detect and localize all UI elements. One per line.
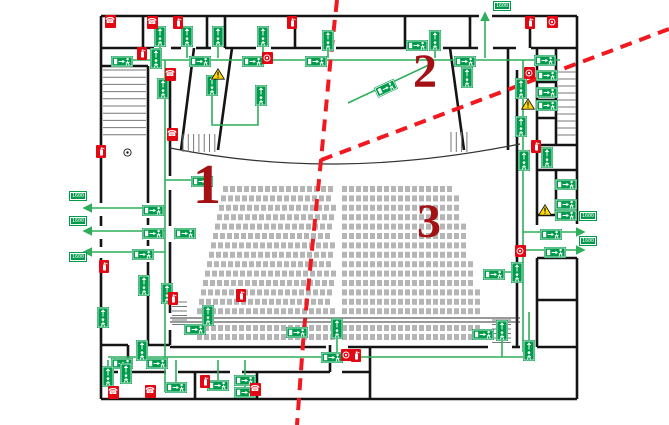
exit-sign — [257, 26, 269, 47]
fire-phone-icon: ☎ — [108, 386, 119, 399]
exit-sign — [111, 54, 133, 65]
width-label: 1600 — [494, 2, 510, 10]
width-label: 1600 — [70, 217, 86, 225]
exit-sign — [536, 68, 558, 79]
fire-phone-icon: ☎ — [167, 128, 178, 141]
warning-icon — [521, 98, 535, 110]
zone-number: 1 — [193, 160, 221, 210]
fire-extinguisher-icon — [168, 292, 178, 305]
width-label: 1600 — [580, 237, 596, 245]
exit-sign — [242, 54, 264, 65]
fire-phone-icon: ☎ — [145, 385, 156, 398]
exit-sign — [154, 26, 166, 47]
fire-extinguisher-icon — [525, 16, 535, 29]
exit-sign — [146, 356, 168, 367]
floor-plan: ☎☎☎☎☎☎☎ 160016001600160016001600123 — [0, 0, 669, 425]
call-point-icon — [123, 148, 132, 157]
width-label: 1600 — [580, 212, 596, 220]
exit-sign — [511, 262, 523, 283]
exit-sign — [142, 203, 164, 214]
fire-extinguisher-icon — [137, 47, 147, 60]
exit-sign — [515, 116, 527, 137]
exit-sign — [483, 267, 505, 278]
symbols-layer: ☎☎☎☎☎☎☎ 160016001600160016001600123 — [0, 0, 669, 425]
exit-sign — [212, 26, 224, 47]
exit-sign — [157, 78, 169, 99]
fire-extinguisher-icon — [173, 16, 183, 29]
width-label: 1600 — [70, 253, 86, 261]
fire-phone-icon: ☎ — [105, 15, 116, 28]
width-label: 1600 — [70, 192, 86, 200]
exit-sign — [322, 30, 334, 51]
exit-sign — [536, 85, 558, 96]
exit-sign — [305, 54, 327, 65]
exit-sign — [534, 53, 556, 64]
exit-sign — [544, 245, 566, 256]
exit-sign — [189, 54, 211, 65]
zone-number: 3 — [417, 200, 441, 243]
exit-sign — [97, 307, 109, 328]
exit-sign — [331, 318, 343, 339]
alarm-button-icon — [262, 52, 273, 64]
fire-extinguisher-icon — [200, 375, 210, 388]
warning-icon — [538, 204, 552, 216]
alarm-button-icon — [547, 16, 558, 28]
fire-phone-icon: ☎ — [165, 68, 176, 81]
exit-sign — [555, 208, 577, 219]
exit-sign — [515, 78, 527, 99]
exit-sign — [102, 366, 114, 387]
exit-sign — [523, 340, 535, 361]
exit-sign — [518, 150, 530, 171]
fire-extinguisher-icon — [236, 289, 246, 302]
exit-sign — [541, 147, 553, 168]
exit-sign — [555, 197, 577, 208]
fire-extinguisher-icon — [99, 260, 109, 273]
fire-phone-icon: ☎ — [147, 16, 158, 29]
exit-sign — [555, 177, 577, 188]
exit-sign — [174, 226, 196, 237]
zone-number: 2 — [413, 50, 437, 93]
alarm-button-icon — [515, 245, 526, 257]
exit-sign — [136, 340, 148, 361]
fire-extinguisher-icon — [287, 16, 297, 29]
alarm-button-icon — [524, 67, 535, 79]
exit-sign — [321, 350, 343, 361]
fire-extinguisher-icon — [351, 349, 361, 362]
exit-sign — [472, 327, 494, 338]
exit-sign — [207, 378, 229, 389]
exit-sign — [234, 373, 256, 384]
exit-sign — [181, 26, 193, 47]
exit-sign — [540, 227, 562, 238]
exit-sign — [255, 85, 267, 106]
warning-icon — [211, 68, 225, 80]
exit-sign — [286, 325, 308, 336]
exit-sign — [120, 363, 132, 384]
exit-sign — [132, 247, 154, 258]
exit-sign — [142, 226, 164, 237]
exit-sign — [454, 54, 476, 65]
exit-sign — [536, 98, 558, 109]
exit-sign — [150, 48, 162, 69]
exit-sign — [138, 275, 150, 296]
alarm-button-icon — [341, 349, 352, 361]
exit-sign — [202, 305, 214, 326]
exit-sign — [461, 67, 473, 88]
fire-phone-icon: ☎ — [250, 383, 261, 396]
exit-sign — [496, 320, 508, 341]
fire-extinguisher-icon — [96, 145, 106, 158]
exit-sign — [165, 380, 187, 391]
exit-sign — [373, 76, 398, 95]
fire-extinguisher-icon — [531, 140, 541, 153]
